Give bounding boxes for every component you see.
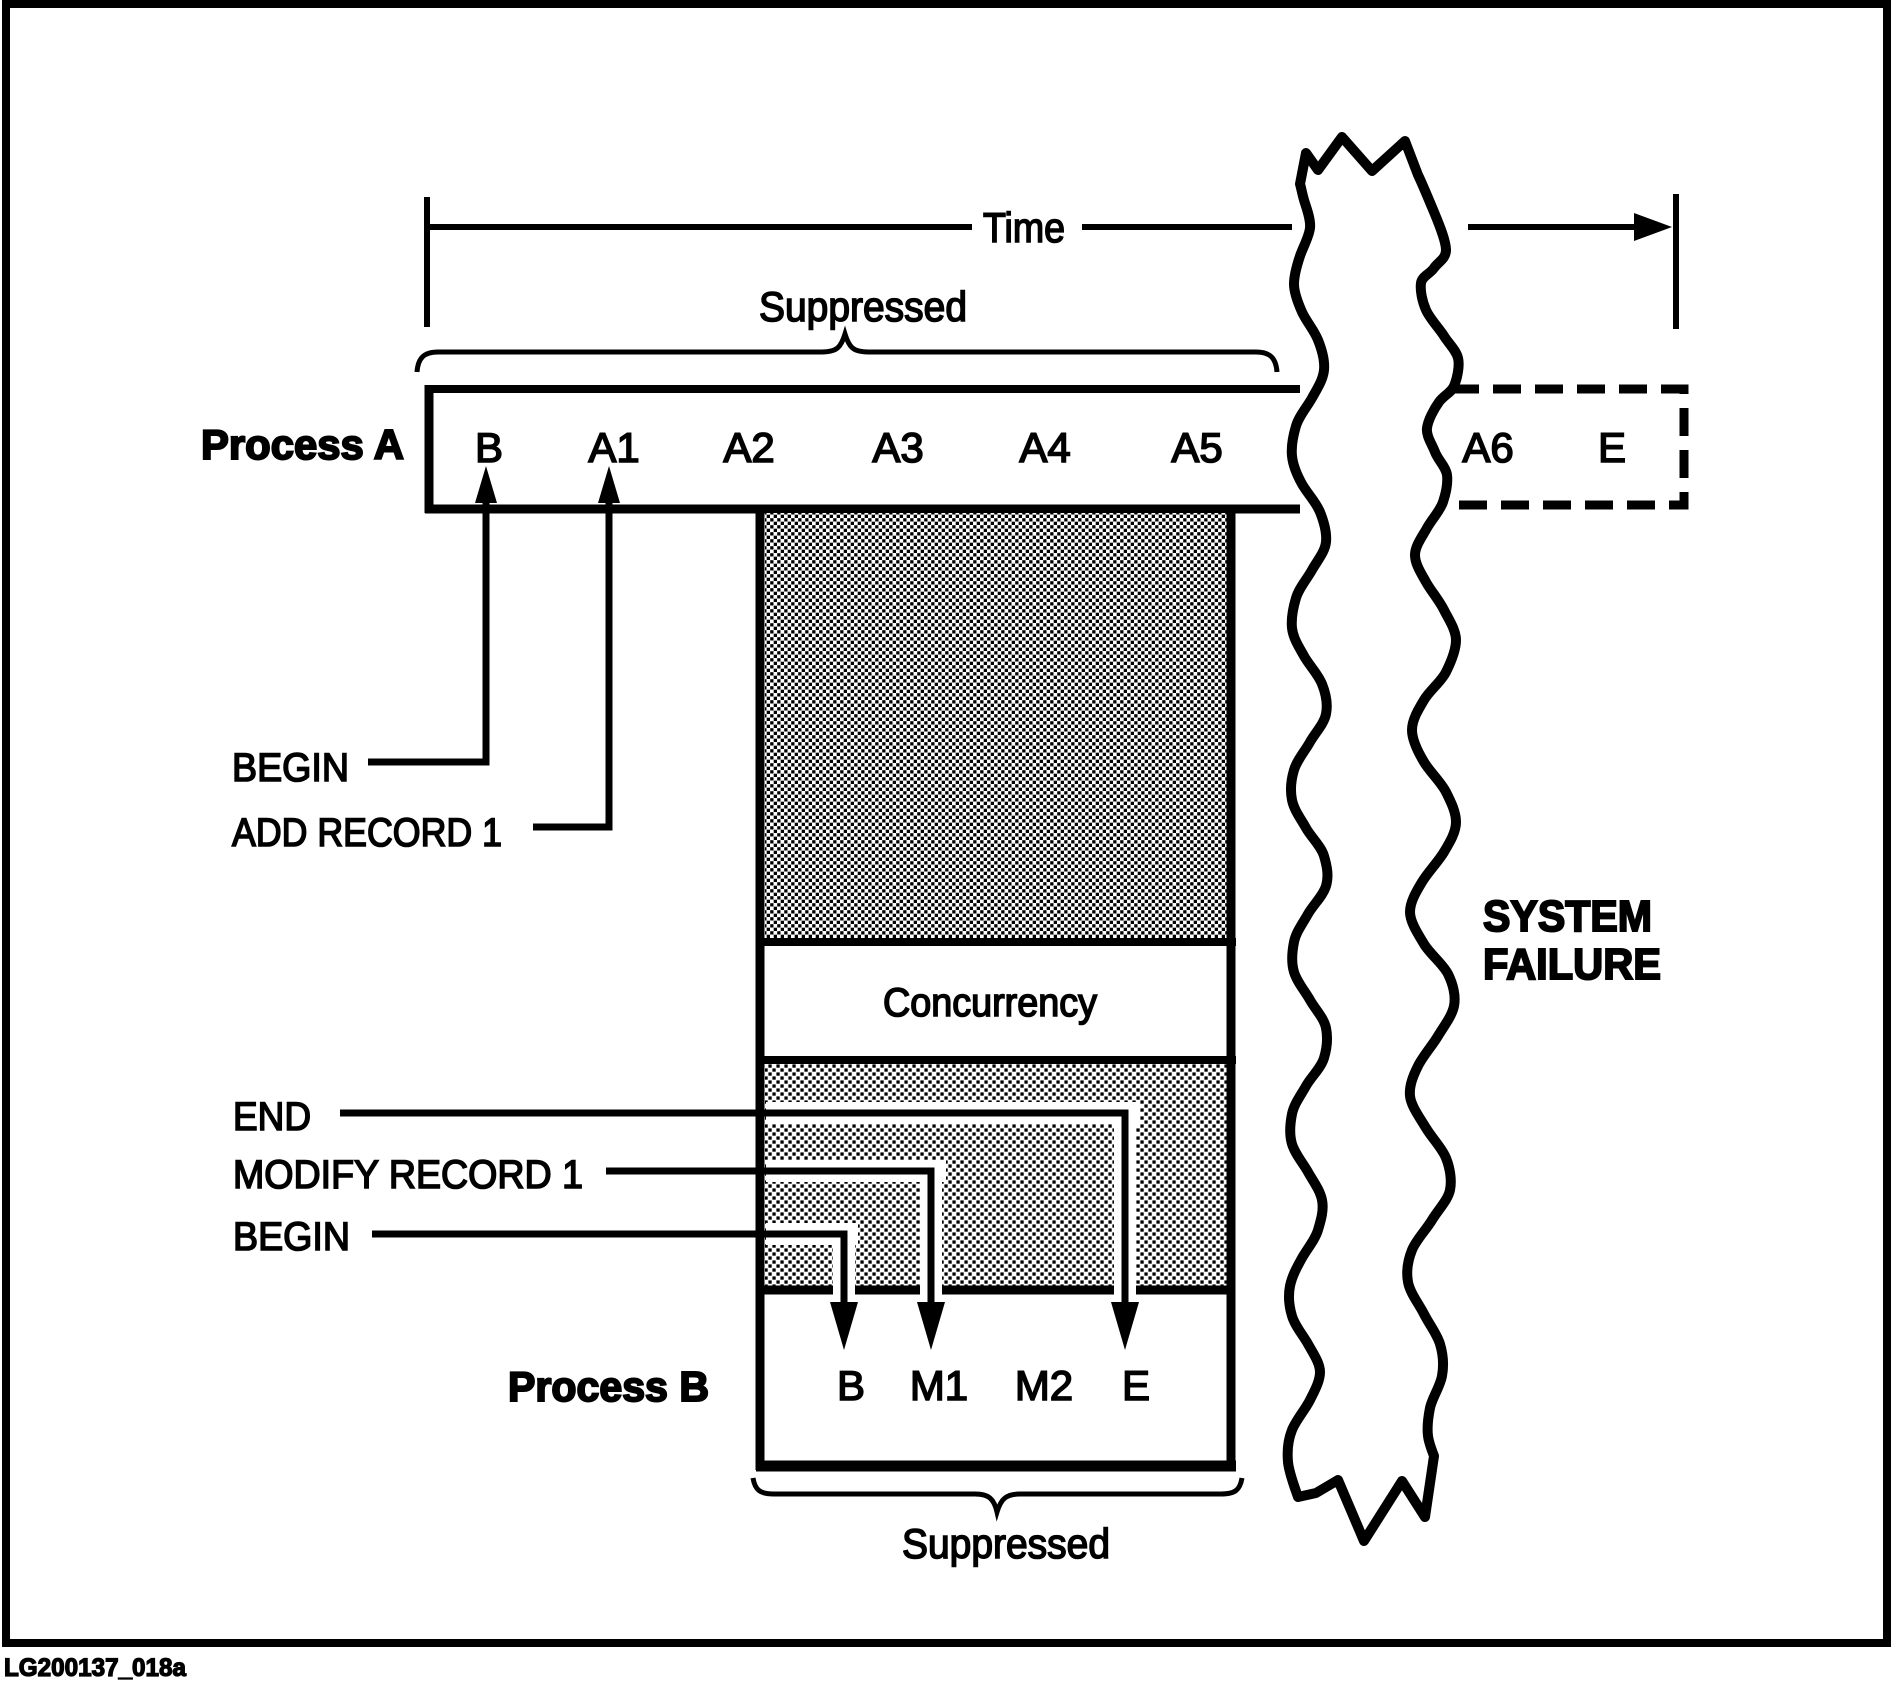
svg-text:Concurrency: Concurrency bbox=[883, 981, 1097, 1025]
svg-text:A4: A4 bbox=[1019, 424, 1070, 471]
svg-text:Suppressed: Suppressed bbox=[759, 283, 967, 330]
svg-text:B: B bbox=[475, 424, 503, 471]
svg-text:Process A: Process A bbox=[201, 421, 404, 468]
svg-text:E: E bbox=[1598, 424, 1626, 471]
svg-text:E: E bbox=[1122, 1362, 1150, 1409]
svg-text:LG200137_018a: LG200137_018a bbox=[4, 1654, 187, 1682]
svg-text:M2: M2 bbox=[1015, 1362, 1073, 1409]
svg-text:Suppressed: Suppressed bbox=[902, 1520, 1110, 1567]
svg-text:A3: A3 bbox=[872, 424, 923, 471]
svg-text:END: END bbox=[233, 1095, 311, 1139]
svg-text:SYSTEM: SYSTEM bbox=[1483, 892, 1652, 941]
svg-text:ADD RECORD 1: ADD RECORD 1 bbox=[232, 811, 502, 855]
svg-text:A2: A2 bbox=[723, 424, 774, 471]
svg-text:M1: M1 bbox=[910, 1362, 968, 1409]
svg-text:FAILURE: FAILURE bbox=[1483, 940, 1661, 989]
svg-text:A1: A1 bbox=[588, 424, 639, 471]
svg-text:MODIFY RECORD 1: MODIFY RECORD 1 bbox=[233, 1153, 583, 1197]
svg-text:A6: A6 bbox=[1462, 424, 1513, 471]
svg-text:A5: A5 bbox=[1171, 424, 1222, 471]
svg-text:Process B: Process B bbox=[508, 1363, 709, 1410]
svg-text:Time: Time bbox=[983, 204, 1065, 251]
svg-text:BEGIN: BEGIN bbox=[233, 1215, 350, 1259]
svg-text:BEGIN: BEGIN bbox=[232, 746, 349, 790]
svg-text:B: B bbox=[837, 1362, 865, 1409]
